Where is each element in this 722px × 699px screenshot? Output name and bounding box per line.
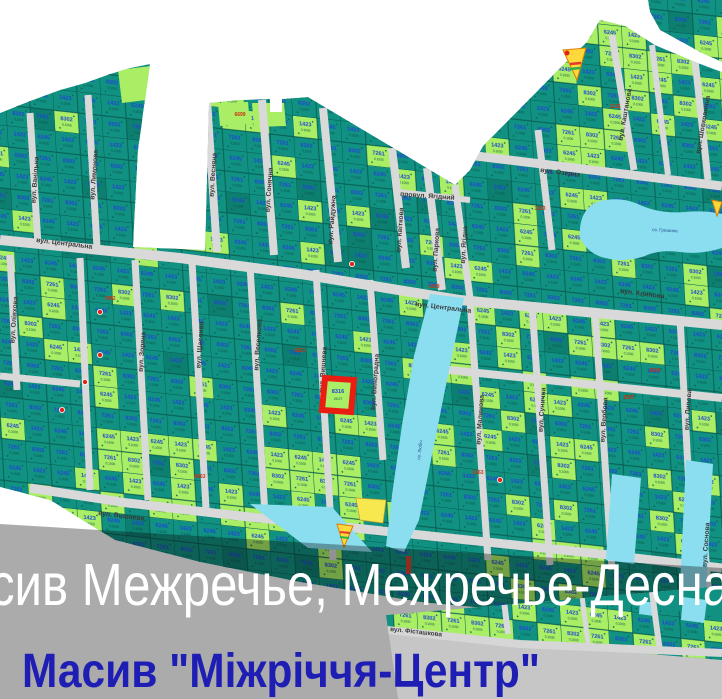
svg-text:6024: 6024 xyxy=(649,368,660,374)
svg-text:8311: 8311 xyxy=(295,348,306,354)
svg-text:Масив "Міжріччя-Центр": Масив "Міжріччя-Центр" xyxy=(22,645,540,698)
svg-text:8397: 8397 xyxy=(623,395,634,401)
svg-text:1239: 1239 xyxy=(428,284,439,290)
svg-text:25,07: 25,07 xyxy=(334,397,343,401)
svg-text:8663: 8663 xyxy=(194,474,205,480)
svg-text:8316: 8316 xyxy=(332,389,344,395)
svg-text:сив Межречье, Межречье-Десна: сив Межречье, Межречье-Десна xyxy=(0,552,722,618)
svg-text:7882: 7882 xyxy=(104,296,115,302)
svg-text:1303: 1303 xyxy=(534,206,545,212)
svg-text:6163: 6163 xyxy=(472,470,483,476)
svg-text:6699: 6699 xyxy=(234,112,245,118)
svg-text:1135: 1135 xyxy=(610,104,621,110)
